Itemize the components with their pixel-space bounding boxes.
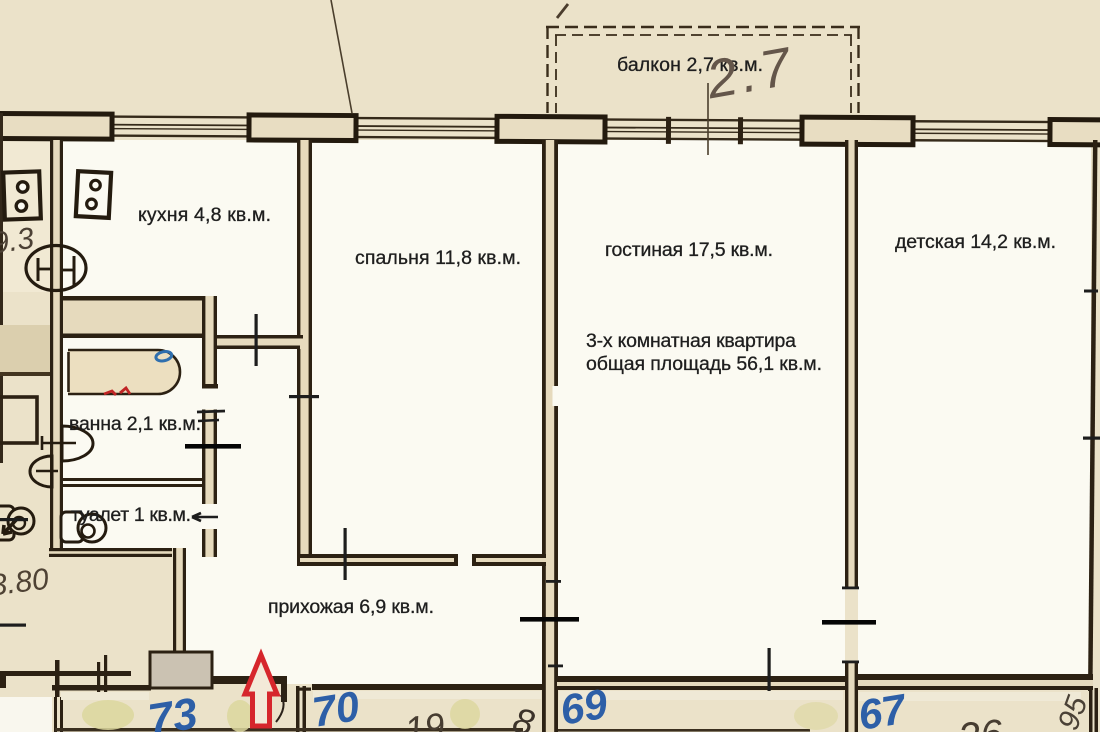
svg-text:туалет 1 кв.м.: туалет 1 кв.м.	[71, 504, 191, 526]
svg-text:общая площадь 56,1 кв.м.: общая площадь 56,1 кв.м.	[586, 353, 822, 375]
svg-text:спальня 11,8 кв.м.: спальня 11,8 кв.м.	[355, 247, 521, 269]
svg-text:кухня 4,8 кв.м.: кухня 4,8 кв.м.	[138, 204, 271, 226]
svg-text:19: 19	[402, 704, 447, 732]
svg-text:9.3: 9.3	[0, 222, 36, 261]
svg-text:67: 67	[855, 685, 910, 732]
svg-text:69: 69	[557, 680, 611, 732]
svg-text:детская 14,2 кв.м.: детская 14,2 кв.м.	[895, 231, 1056, 253]
svg-text:ванна 2,1 кв.м.: ванна 2,1 кв.м.	[69, 413, 201, 435]
svg-text:прихожая 6,9 кв.м.: прихожая 6,9 кв.м.	[268, 596, 434, 618]
svg-text:73: 73	[145, 689, 201, 732]
svg-text:3-х комнатная квартира: 3-х комнатная квартира	[586, 330, 796, 352]
svg-text:гостиная 17,5 кв.м.: гостиная 17,5 кв.м.	[605, 239, 773, 261]
svg-text:26: 26	[955, 712, 1006, 732]
svg-text:70: 70	[309, 682, 362, 732]
